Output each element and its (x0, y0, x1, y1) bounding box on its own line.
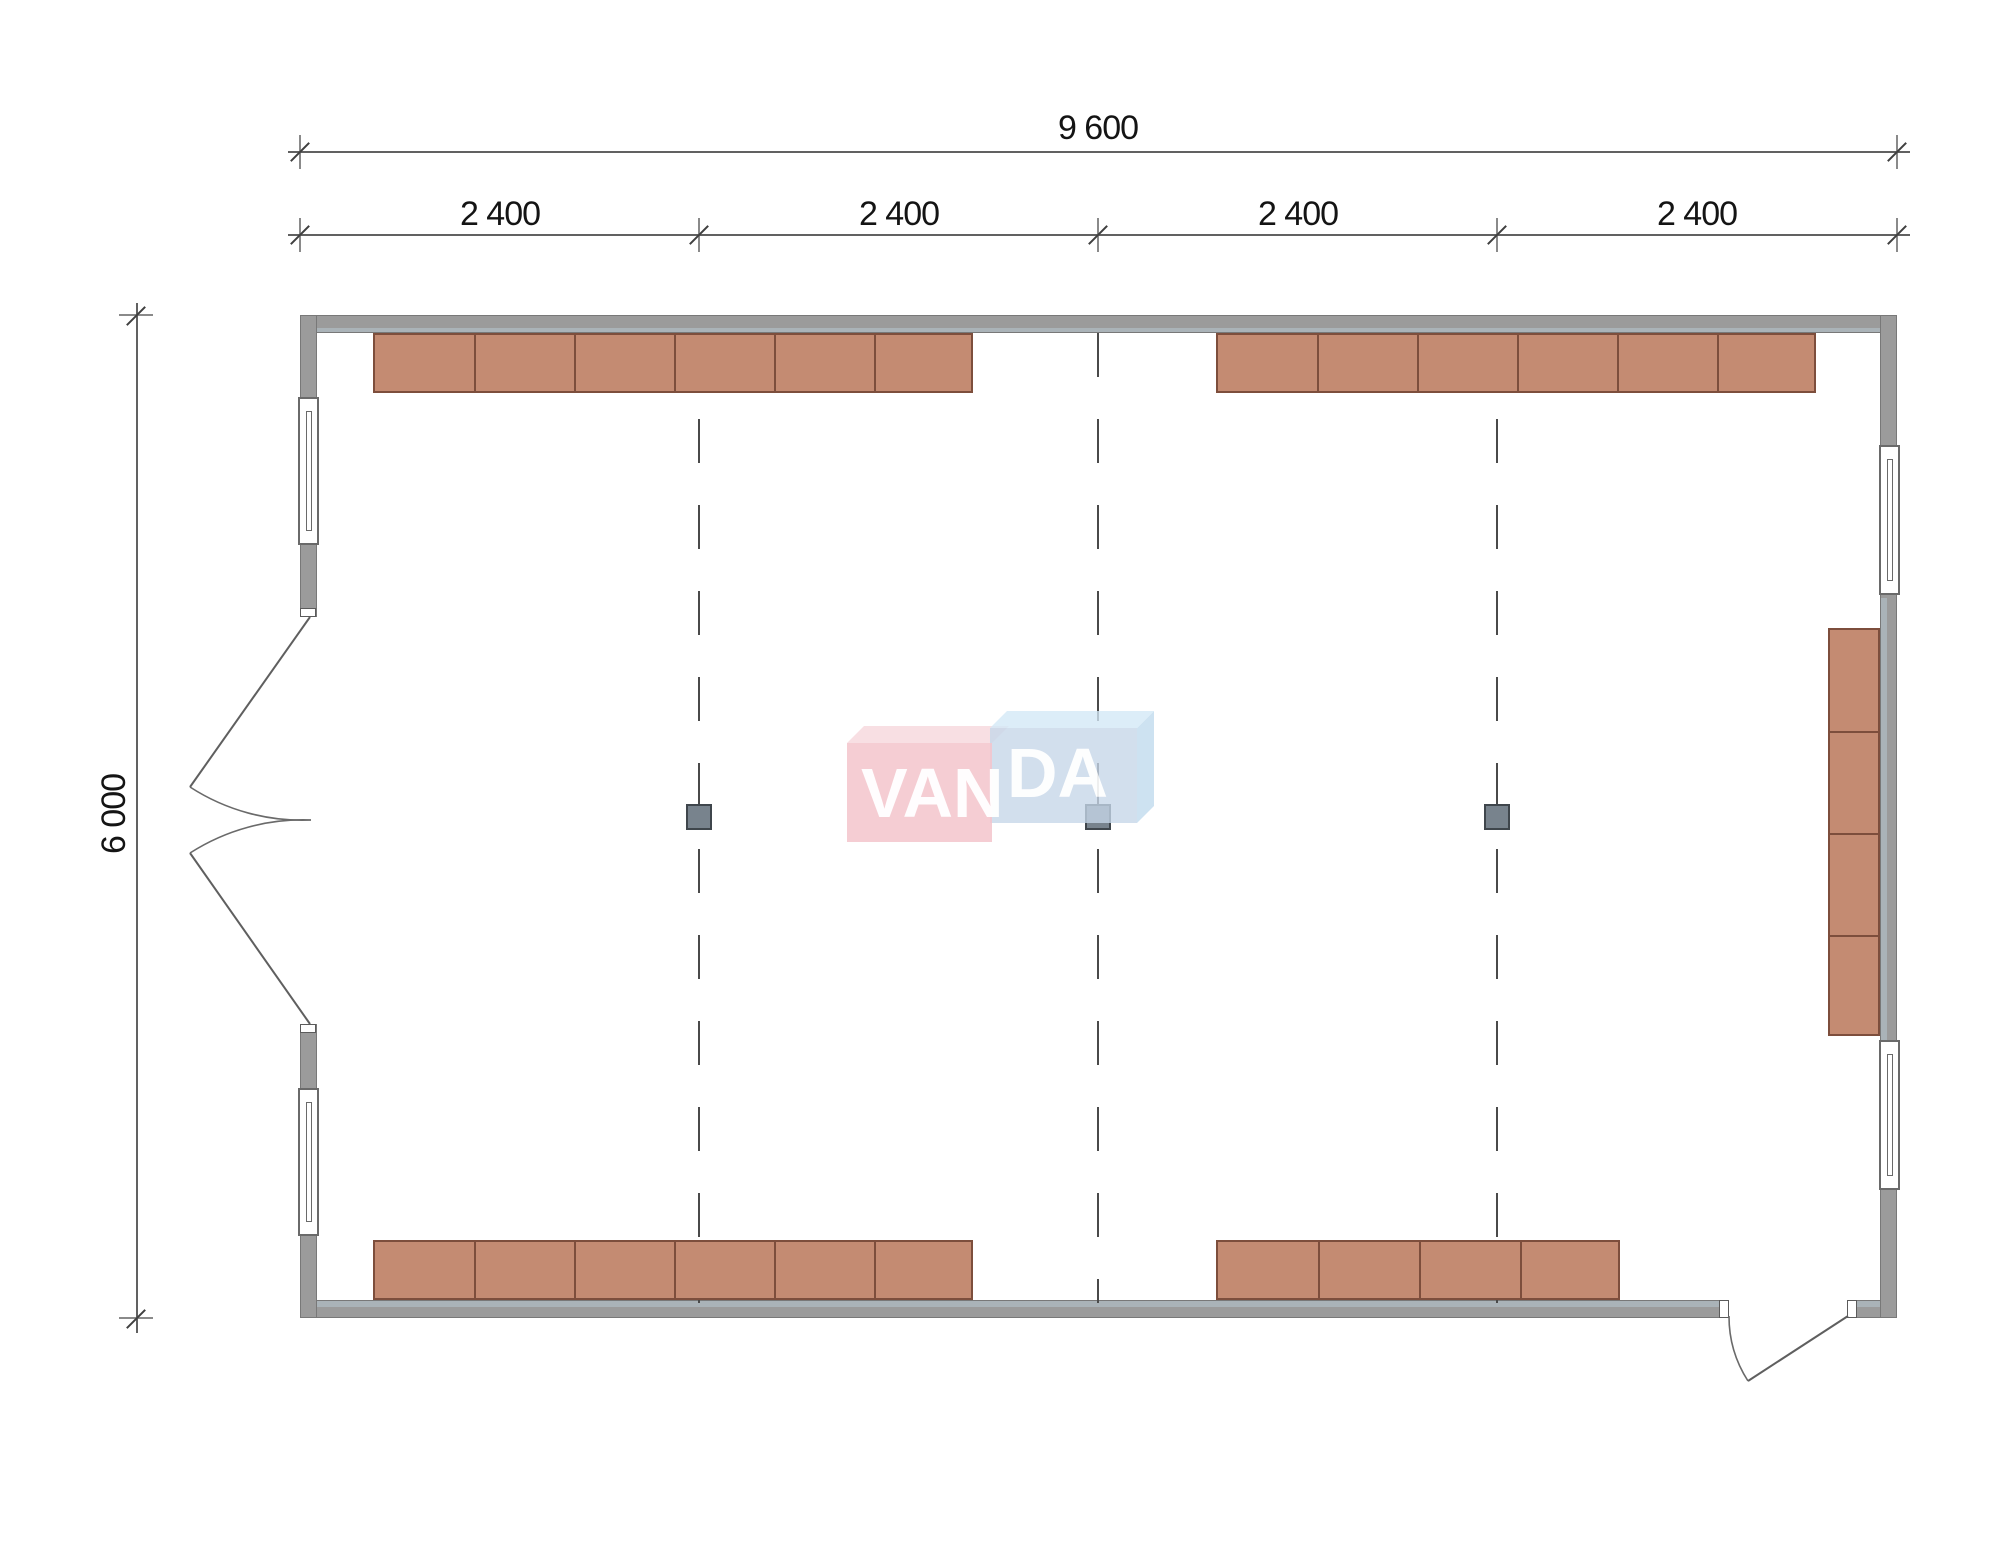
wall-top (300, 315, 1897, 333)
furniture-divider (574, 335, 576, 391)
dimension-label-total-height: 6 000 (96, 714, 132, 914)
window (298, 1088, 319, 1236)
furniture-divider (1419, 1242, 1421, 1298)
furniture-divider (1417, 335, 1419, 391)
logo-blue-box-top-face (990, 711, 1154, 728)
window-glass (306, 1102, 312, 1222)
floor-plan-canvas: 9 600 2 400 2 400 2 400 2 400 6 000 V (0, 0, 2000, 1550)
furniture-divider (674, 335, 676, 391)
furniture-run (373, 1240, 973, 1300)
logo-red-box-top-face (847, 726, 1009, 743)
furniture-divider (1318, 1242, 1320, 1298)
door-arc (190, 820, 311, 853)
dimension-label-total-width: 9 600 (998, 110, 1198, 146)
door-jamb (300, 608, 316, 617)
dimension-label-bay-1: 2 400 (420, 196, 580, 232)
structural-column (686, 804, 712, 830)
door-leaf (190, 853, 310, 1024)
window-glass (1887, 1054, 1893, 1176)
dimension-line-total-height (136, 303, 138, 1333)
furniture-divider (1517, 335, 1519, 391)
furniture-divider (1617, 335, 1619, 391)
furniture-divider (574, 1242, 576, 1298)
window (1879, 445, 1900, 595)
furniture-divider (474, 1242, 476, 1298)
door-leaf (190, 617, 310, 787)
logo-text-van: VAN (861, 758, 1004, 828)
furniture-divider (874, 335, 876, 391)
furniture-divider (1830, 833, 1878, 835)
dimension-label-bay-3: 2 400 (1218, 196, 1378, 232)
logo-text-da: DA (1007, 738, 1108, 808)
dimension-label-bay-2: 2 400 (819, 196, 979, 232)
door-jamb (300, 1024, 316, 1033)
furniture-divider (1830, 731, 1878, 733)
door-opening-left (298, 617, 319, 1024)
door-jamb (1847, 1300, 1857, 1318)
door-leaf (1748, 1316, 1848, 1381)
furniture-divider (774, 1242, 776, 1298)
window (298, 397, 319, 545)
window (1879, 1040, 1900, 1190)
furniture-divider (674, 1242, 676, 1298)
dimension-line-total-width (288, 151, 1910, 153)
furniture-divider (874, 1242, 876, 1298)
door-opening-bottom (1729, 1298, 1848, 1320)
furniture-run (373, 333, 973, 393)
furniture-run (1216, 333, 1816, 393)
furniture-run (1216, 1240, 1620, 1300)
window-glass (1887, 459, 1893, 581)
furniture-run (1828, 628, 1880, 1036)
furniture-divider (1717, 335, 1719, 391)
logo-blue-box-side-face (1137, 711, 1154, 823)
dimension-label-bay-4: 2 400 (1617, 196, 1777, 232)
structural-column (1484, 804, 1510, 830)
furniture-divider (1317, 335, 1319, 391)
furniture-divider (474, 335, 476, 391)
vanda-watermark: VAN DA (845, 700, 1175, 870)
wall-right-liner (1881, 598, 1887, 1050)
door-arc (1729, 1316, 1748, 1381)
window-glass (306, 411, 312, 531)
furniture-divider (1520, 1242, 1522, 1298)
furniture-divider (1830, 935, 1878, 937)
furniture-divider (774, 335, 776, 391)
door-arc (190, 787, 311, 820)
door-jamb (1719, 1300, 1729, 1318)
